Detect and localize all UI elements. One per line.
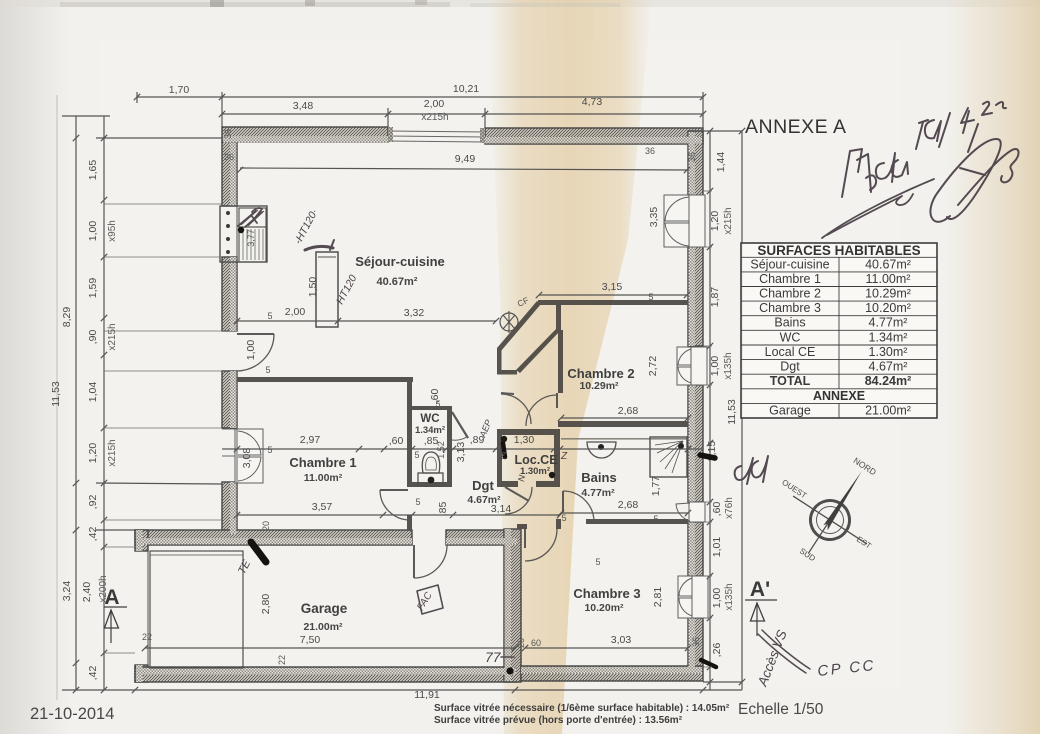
svg-text:1,44: 1,44 xyxy=(715,152,727,173)
svg-text:2,00: 2,00 xyxy=(285,306,306,318)
svg-text:5: 5 xyxy=(414,450,419,460)
svg-text:5: 5 xyxy=(267,311,272,321)
svg-text:5: 5 xyxy=(267,445,272,455)
svg-text:3,32: 3,32 xyxy=(404,307,425,319)
svg-text:5: 5 xyxy=(415,497,420,507)
svg-text:2,68: 2,68 xyxy=(618,405,639,417)
svg-text:9,49: 9,49 xyxy=(455,153,476,165)
svg-text:Bains: Bains xyxy=(581,470,616,485)
svg-text:Local CE: Local CE xyxy=(765,345,816,359)
svg-text:22: 22 xyxy=(277,655,287,665)
svg-text:11.00m²: 11.00m² xyxy=(866,272,911,286)
svg-text:36: 36 xyxy=(223,129,233,139)
svg-text:1,00: 1,00 xyxy=(87,221,99,242)
svg-text:11,91: 11,91 xyxy=(414,689,440,701)
svg-text:Surface vitrée nécessaire (1/6: Surface vitrée nécessaire (1/6ème surfac… xyxy=(434,703,730,714)
svg-text:1.30m²: 1.30m² xyxy=(869,345,908,359)
svg-text:x135h: x135h xyxy=(724,583,735,610)
svg-text:4.67m²: 4.67m² xyxy=(467,494,501,506)
svg-text:2,81: 2,81 xyxy=(652,587,664,608)
svg-text:1,77: 1,77 xyxy=(650,476,662,497)
svg-text:,42: ,42 xyxy=(87,527,99,542)
svg-text:10.20m²: 10.20m² xyxy=(865,301,911,315)
svg-text:WC: WC xyxy=(420,413,439,425)
svg-text:1,70: 1,70 xyxy=(169,84,190,96)
svg-text:3,48: 3,48 xyxy=(293,100,314,112)
svg-text:5: 5 xyxy=(435,399,440,409)
svg-text:1,65: 1,65 xyxy=(87,160,99,181)
svg-text:2,40: 2,40 xyxy=(81,582,93,603)
svg-text:Séjour-cuisine: Séjour-cuisine xyxy=(750,257,829,271)
svg-text:1,01: 1,01 xyxy=(711,537,723,558)
svg-text:21-10-2014: 21-10-2014 xyxy=(30,705,114,723)
svg-text:1,20: 1,20 xyxy=(87,443,99,464)
svg-text:2,72: 2,72 xyxy=(647,356,659,377)
svg-text:1,87: 1,87 xyxy=(709,287,721,308)
svg-text:21.00m²: 21.00m² xyxy=(865,403,911,417)
svg-text:A: A xyxy=(104,586,119,609)
svg-text:20: 20 xyxy=(261,521,271,531)
svg-text:3,35: 3,35 xyxy=(648,207,660,228)
svg-text:x215h: x215h xyxy=(421,112,448,123)
svg-text:Chambre 3: Chambre 3 xyxy=(759,301,821,315)
svg-text:22: 22 xyxy=(142,632,152,642)
svg-text:Chambre 2: Chambre 2 xyxy=(759,287,821,301)
svg-text:x215h: x215h xyxy=(107,439,118,466)
svg-text:1.34m²: 1.34m² xyxy=(415,425,445,436)
svg-text:TOTAL: TOTAL xyxy=(770,374,811,388)
svg-text:21.00m²: 21.00m² xyxy=(303,621,343,633)
svg-text:5: 5 xyxy=(595,557,600,567)
svg-text:Chambre 3: Chambre 3 xyxy=(573,586,640,601)
svg-text:Bains: Bains xyxy=(774,316,805,330)
svg-text:Séjour-cuisine: Séjour-cuisine xyxy=(355,254,445,269)
svg-text:,60: ,60 xyxy=(389,435,404,447)
svg-text:Garage: Garage xyxy=(301,601,348,616)
svg-text:36: 36 xyxy=(687,152,697,162)
svg-text:2,68: 2,68 xyxy=(618,499,639,511)
svg-text:x76h: x76h xyxy=(724,497,735,519)
svg-text:1,04: 1,04 xyxy=(87,382,99,403)
svg-text:36: 36 xyxy=(691,637,701,647)
svg-text:4.77m²: 4.77m² xyxy=(581,487,615,499)
svg-text:SURFACES HABITABLES: SURFACES HABITABLES xyxy=(757,243,920,258)
svg-text:1.34m²: 1.34m² xyxy=(869,330,908,344)
svg-text:3,08: 3,08 xyxy=(241,448,253,469)
svg-text:10.20m²: 10.20m² xyxy=(584,602,624,614)
svg-text:,90: ,90 xyxy=(87,330,99,345)
svg-text:77: 77 xyxy=(485,649,502,665)
svg-text:Echelle 1/50: Echelle 1/50 xyxy=(738,701,824,718)
svg-text:11,53: 11,53 xyxy=(50,381,62,407)
svg-text:Chambre 1: Chambre 1 xyxy=(759,272,821,286)
svg-text:3,57: 3,57 xyxy=(312,501,333,513)
svg-text:x135h: x135h xyxy=(723,352,734,379)
svg-text:10,21: 10,21 xyxy=(453,83,479,95)
svg-text:1,50: 1,50 xyxy=(307,277,319,298)
svg-text:A': A' xyxy=(750,578,770,601)
svg-text:1,52: 1,52 xyxy=(436,441,446,459)
svg-text:5: 5 xyxy=(653,514,658,524)
svg-text:1,00: 1,00 xyxy=(245,340,257,361)
svg-text:Dgt: Dgt xyxy=(472,478,494,493)
svg-text:1,00: 1,00 xyxy=(709,356,721,377)
svg-text:11,53: 11,53 xyxy=(726,399,738,425)
svg-text:1,00: 1,00 xyxy=(711,588,723,609)
svg-text:36: 36 xyxy=(224,152,234,162)
svg-text:5: 5 xyxy=(648,292,653,302)
svg-text:1,59: 1,59 xyxy=(87,278,99,299)
svg-text:2,97: 2,97 xyxy=(300,434,321,446)
svg-text:7,50: 7,50 xyxy=(300,634,321,646)
svg-text:,42: ,42 xyxy=(87,666,99,681)
svg-text:11.00m²: 11.00m² xyxy=(304,472,343,484)
svg-text:x95h: x95h xyxy=(107,220,118,242)
svg-text:,85: ,85 xyxy=(437,502,449,517)
svg-text:x215h: x215h xyxy=(107,323,118,350)
svg-text:Dgt: Dgt xyxy=(780,360,800,374)
svg-text:WC: WC xyxy=(780,330,801,344)
svg-text:ANNEXE A: ANNEXE A xyxy=(745,116,847,138)
svg-text:3,03: 3,03 xyxy=(611,634,632,646)
svg-text:40.67m²: 40.67m² xyxy=(377,276,418,288)
svg-text:1,20: 1,20 xyxy=(709,211,721,232)
svg-text:84.24m²: 84.24m² xyxy=(865,374,912,388)
svg-text:8,29: 8,29 xyxy=(61,307,73,328)
svg-text:10.29m²: 10.29m² xyxy=(865,287,911,301)
svg-text:36: 36 xyxy=(645,146,655,156)
svg-text:x215h: x215h xyxy=(723,207,734,234)
svg-text:Chambre 1: Chambre 1 xyxy=(289,455,356,470)
svg-text:40.67m²: 40.67m² xyxy=(865,257,911,271)
svg-text:2,00: 2,00 xyxy=(424,98,445,110)
svg-text:3,24: 3,24 xyxy=(61,581,73,602)
svg-text:,60: ,60 xyxy=(711,502,723,517)
svg-text:5: 5 xyxy=(265,365,270,375)
svg-text:4.77m²: 4.77m² xyxy=(869,316,908,330)
svg-text:3,77: 3,77 xyxy=(246,229,256,247)
svg-text:2,80: 2,80 xyxy=(260,594,272,615)
svg-text:3,13: 3,13 xyxy=(455,442,467,463)
svg-text:ANNEXE: ANNEXE xyxy=(813,389,865,403)
svg-text:,26: ,26 xyxy=(711,643,723,658)
svg-text:4.67m²: 4.67m² xyxy=(869,360,908,374)
svg-text:Garage: Garage xyxy=(769,403,811,417)
svg-text:,92: ,92 xyxy=(87,495,99,510)
